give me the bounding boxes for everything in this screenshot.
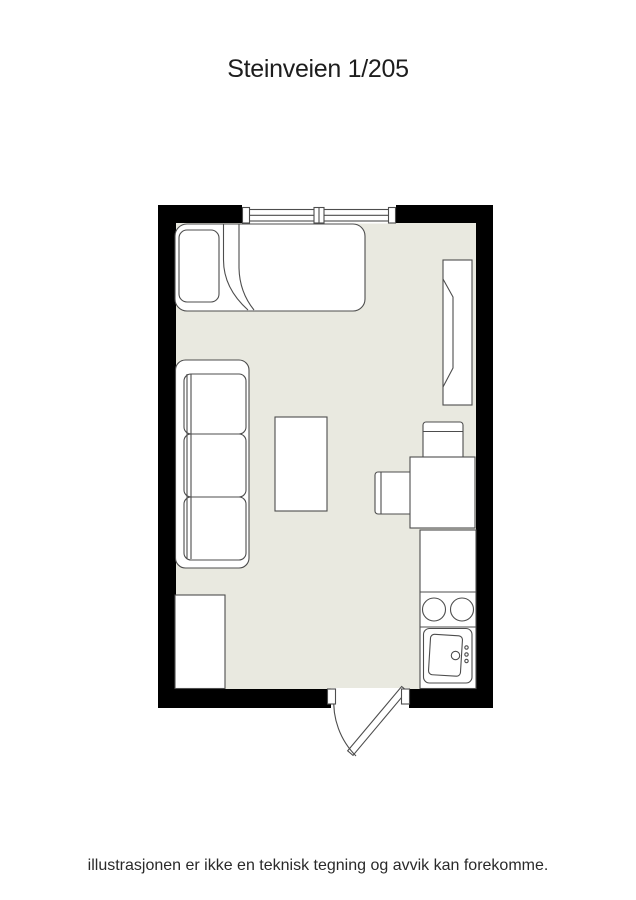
sofa-cushion — [184, 434, 246, 497]
sofa-cushion — [184, 497, 246, 560]
sink — [424, 629, 473, 684]
floorplan-page: Steinveien 1/205 — [0, 0, 636, 900]
kitchen-counter — [420, 530, 476, 689]
faucet-knobs — [465, 646, 468, 663]
door-jamb-right — [402, 689, 410, 704]
bed — [175, 224, 365, 311]
window — [242, 204, 396, 224]
dining-table — [410, 457, 475, 528]
sofa — [176, 360, 250, 568]
window-jamb-left — [243, 208, 250, 224]
chair-left — [375, 472, 413, 514]
chair-top — [423, 422, 463, 460]
desk — [175, 595, 225, 689]
door — [328, 687, 410, 756]
sink-drain — [451, 651, 459, 659]
pillow — [179, 230, 219, 302]
door-jamb-left — [328, 689, 336, 704]
disclaimer-text: illustrasjonen er ikke en teknisk tegnin… — [0, 857, 636, 875]
coffee-table — [275, 417, 327, 511]
wardrobe — [443, 260, 472, 405]
floorplan-drawing — [0, 0, 636, 900]
window-jamb-right — [389, 208, 396, 224]
sofa-cushion — [184, 374, 246, 434]
